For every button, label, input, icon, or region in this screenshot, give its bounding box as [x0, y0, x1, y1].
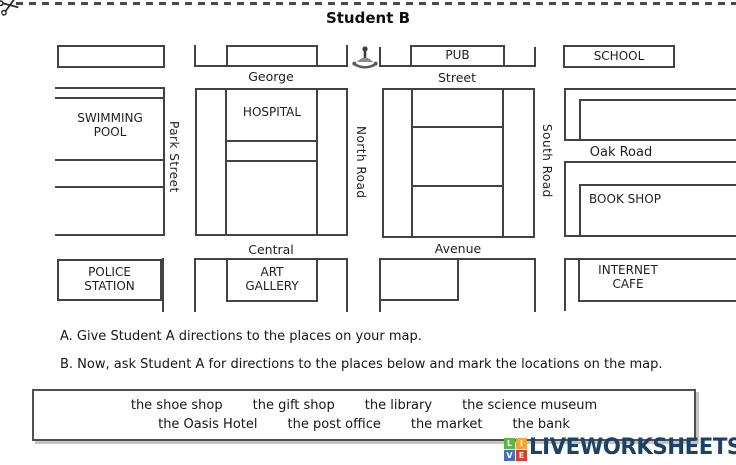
block-line — [578, 300, 736, 302]
block-line — [564, 258, 566, 311]
school-label: SCHOOL — [594, 50, 645, 64]
street-name-oak-road: Oak Road — [584, 145, 658, 160]
art-gallery-label: ART GALLERY — [232, 266, 312, 294]
word-bank-row-2: the Oasis Hotel the post office the mark… — [34, 417, 694, 432]
block-line — [564, 88, 566, 141]
block-line — [55, 186, 165, 188]
block-line — [564, 139, 736, 141]
block-line — [564, 258, 736, 260]
block-line — [579, 184, 736, 186]
word-gift-shop: the gift shop — [253, 398, 335, 413]
block-line — [578, 258, 580, 302]
building-box-pub: PUB — [410, 45, 505, 67]
word-post-office: the post office — [288, 417, 381, 432]
internet-cafe-label: INTERNET CAFE — [582, 264, 674, 292]
street-name-park-street: Park Street — [167, 121, 181, 193]
block-line — [564, 161, 566, 237]
block-line — [564, 161, 736, 163]
book-shop-label: BOOK SHOP — [582, 193, 668, 207]
building-box-art-gallery: ART GALLERY — [226, 258, 318, 302]
building-box-school: SCHOOL — [563, 45, 675, 68]
block-line — [55, 234, 165, 236]
building-box-empty-avenue — [379, 258, 459, 301]
pub-label: PUB — [445, 49, 469, 63]
word-oasis-hotel: the Oasis Hotel — [158, 417, 257, 432]
liveworksheets-logo-text: LIVEWORKSHEETS — [529, 435, 736, 461]
logo-square-v: V — [504, 450, 515, 461]
block-line — [55, 97, 165, 99]
block-empty-outline — [382, 88, 535, 238]
word-science-museum: the science museum — [462, 398, 597, 413]
building-box-empty-george — [226, 45, 318, 67]
block-line — [225, 160, 318, 162]
building-box-empty-topleft — [57, 45, 165, 68]
liveworksheets-logo-icon: L I V E — [504, 438, 527, 461]
fountain-icon — [351, 45, 379, 75]
street-line — [194, 258, 196, 312]
word-library: the library — [365, 398, 432, 413]
block-line — [55, 87, 165, 89]
block-line — [564, 88, 736, 90]
street-name-north-road: North Road — [354, 126, 368, 199]
street-name-central: Central — [243, 242, 299, 257]
block-line — [411, 88, 413, 238]
street-name-street: Street — [431, 70, 483, 85]
street-line — [346, 258, 348, 312]
block-line — [411, 126, 504, 128]
block-line — [411, 185, 504, 187]
block-line — [579, 184, 581, 237]
word-bank-box: the shoe shop the gift shop the library … — [32, 389, 696, 441]
street-line — [346, 45, 348, 67]
block-line — [502, 88, 504, 238]
liveworksheets-logo[interactable]: L I V E LIVEWORKSHEETS — [504, 435, 736, 461]
block-line — [564, 235, 736, 237]
street-line — [379, 258, 381, 312]
word-shoe-shop: the shoe shop — [131, 398, 223, 413]
page-title: Student B — [0, 9, 736, 27]
block-line — [55, 159, 165, 161]
block-line — [225, 140, 318, 142]
street-line — [379, 47, 381, 67]
street-name-south-road: South Road — [540, 124, 554, 198]
worksheet-page: Student B PUB SCHOOL George Street SWIMM… — [0, 0, 736, 465]
hospital-label: HOSPITAL — [227, 106, 317, 120]
logo-square-i: I — [516, 438, 527, 449]
instruction-b: B. Now, ask Student A for directions to … — [60, 357, 662, 372]
word-market: the market — [411, 417, 483, 432]
street-line — [162, 258, 164, 312]
word-bank-row-1: the shoe shop the gift shop the library … — [34, 398, 694, 413]
logo-square-e: E — [516, 450, 527, 461]
block-line — [579, 99, 581, 141]
instruction-a: A. Give Student A directions to the plac… — [60, 329, 422, 344]
swimming-pool-label: SWIMMING POOL — [60, 112, 160, 140]
street-line — [194, 45, 196, 67]
cut-dashed-line — [16, 2, 736, 5]
street-name-george: George — [245, 69, 297, 84]
street-name-avenue: Avenue — [430, 241, 486, 256]
block-line — [579, 99, 736, 101]
logo-square-l: L — [504, 438, 515, 449]
street-line — [534, 47, 536, 67]
building-box-police-station: POLICE STATION — [57, 259, 162, 301]
word-bank: the bank — [512, 417, 569, 432]
block-line — [163, 87, 165, 236]
street-line — [534, 258, 536, 312]
police-station-label: POLICE STATION — [70, 266, 150, 294]
